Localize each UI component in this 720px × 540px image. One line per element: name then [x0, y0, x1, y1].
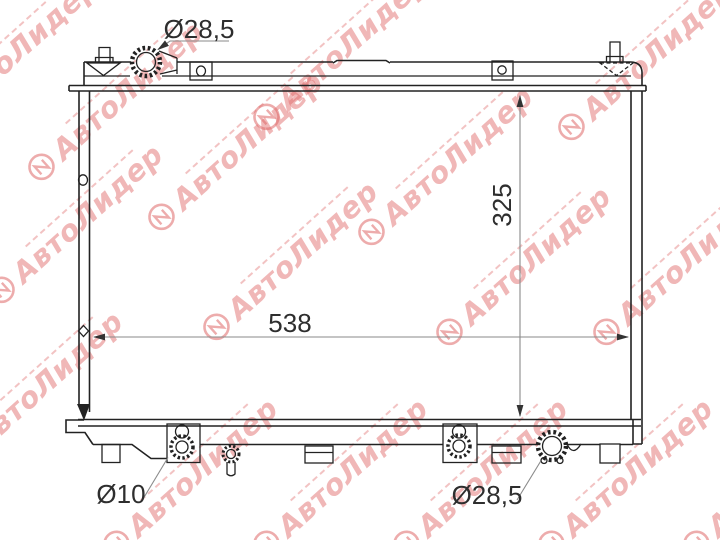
filler-neck — [132, 48, 160, 76]
left-pin — [96, 48, 114, 63]
dimensions: 325 538 Ø28,5 Ø10 Ø28,5 — [94, 14, 628, 510]
leader-drain-diameter — [143, 458, 168, 500]
left-v-mount — [87, 63, 120, 76]
bottom-tank-top-lines — [78, 420, 641, 427]
left-wall-foot — [77, 404, 90, 421]
right-v-mount — [600, 63, 633, 76]
bottom-tank-right-cap — [633, 420, 642, 444]
dim-drain-diameter-label: Ø10 — [96, 479, 145, 509]
drain-plug-fitting — [167, 424, 200, 463]
outlet-pipe — [538, 432, 566, 464]
top-tank — [69, 42, 646, 91]
side-bracket-hole — [79, 175, 88, 185]
right-top-bracket — [492, 61, 513, 80]
dim-core-width-label: 538 — [268, 308, 311, 338]
top-tank-flange — [69, 86, 646, 92]
left-top-bracket — [190, 62, 212, 80]
center-pipe-fitting — [443, 424, 477, 463]
mount-tab-left — [305, 446, 333, 463]
radiator-drawing-page: АвтоЛидерАвтоЛидерАвтоЛидерАвтоЛидерАвто… — [0, 0, 720, 540]
mount-tab-right — [492, 446, 521, 463]
right-leg — [600, 444, 620, 463]
bottom-tank — [66, 420, 642, 476]
radiator-core — [77, 91, 642, 444]
top-tank-right-cap — [631, 62, 642, 86]
right-pin — [607, 42, 624, 62]
top-edge-notch — [333, 61, 390, 64]
dim-filler-diameter-label: Ø28,5 — [164, 14, 235, 44]
datum-diamond — [79, 326, 89, 337]
left-leg — [102, 445, 120, 463]
radiator-technical-drawing: 325 538 Ø28,5 Ø10 Ø28,5 — [0, 0, 720, 540]
dim-core-height-label: 325 — [487, 183, 517, 226]
bottom-tank-left-lip — [66, 420, 93, 445]
dim-outlet-diameter-label: Ø28,5 — [452, 480, 523, 510]
drain-cock — [223, 446, 239, 476]
